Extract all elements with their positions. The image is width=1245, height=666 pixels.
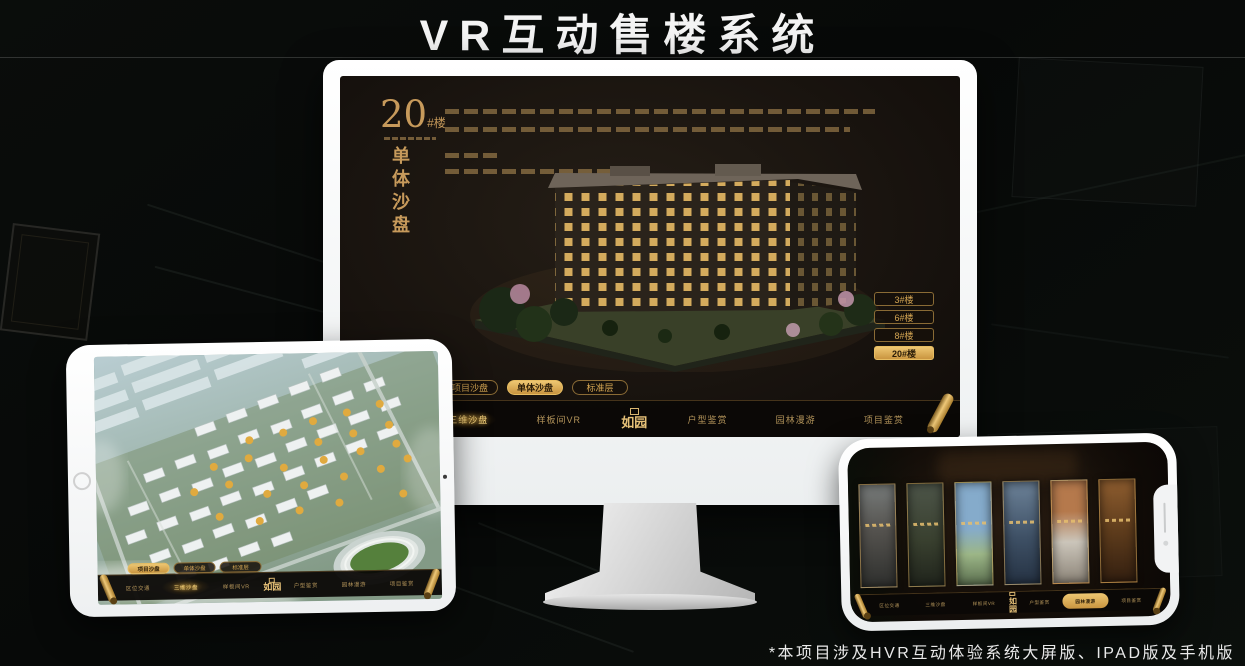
- gallery-panels: [858, 478, 1137, 588]
- bg-plaque: [0, 223, 100, 341]
- monitor-stand-neck: [545, 503, 755, 601]
- nav-item-showroom-vr[interactable]: 样板间VR: [528, 410, 589, 429]
- camera-icon: [1163, 541, 1168, 546]
- scroll-handle-icon[interactable]: [926, 392, 955, 434]
- tablet-view-tabs: 项目沙盘 单体沙盘 标准层: [127, 561, 261, 574]
- nav-item-garden-roam[interactable]: 园林漫游: [1063, 593, 1109, 609]
- nav-item-garden-roam[interactable]: 园林漫游: [768, 410, 824, 429]
- screen-heading: 20#楼 单体沙盘: [380, 96, 446, 238]
- tablet-home-button[interactable]: [73, 472, 91, 490]
- nav-item-garden-roam[interactable]: 园林漫游: [329, 575, 377, 593]
- bg-road-line: [991, 323, 1229, 358]
- tablet-tab-standard-floor[interactable]: 标准层: [219, 561, 261, 573]
- heading-subtitle: 单体沙盘: [386, 146, 412, 238]
- monitor-stand-base: [543, 594, 757, 610]
- footnote-text: *本项目涉及HVR互动体验系统大屏版、IPAD版及手机版: [769, 639, 1235, 663]
- seal-icon: [630, 408, 639, 415]
- gallery-panel[interactable]: [1050, 479, 1089, 584]
- gallery-panel[interactable]: [858, 483, 897, 588]
- interior-backdrop: [937, 450, 1078, 483]
- tablet-tab-project-sandbox[interactable]: 项目沙盘: [127, 563, 169, 575]
- title-divider: [0, 57, 1245, 58]
- gallery-panel[interactable]: [906, 482, 945, 587]
- floor-button-8[interactable]: 8#楼: [874, 328, 934, 342]
- tablet-tab-single-sandbox[interactable]: 单体沙盘: [173, 562, 215, 574]
- gallery-panel[interactable]: [1002, 480, 1041, 585]
- nav-item-project-gallery[interactable]: 项目鉴赏: [378, 574, 426, 592]
- brand-logo: 如园: [621, 408, 647, 430]
- phone-device: 区位交通 三维沙盘 样板间VR 如园 户型鉴赏 园林漫游 项目鉴赏: [838, 432, 1180, 631]
- nav-item-3d-sandbox[interactable]: 三维沙盘: [162, 578, 210, 596]
- speaker-icon: [1163, 503, 1166, 533]
- floor-button-20[interactable]: 20#楼: [874, 346, 934, 360]
- brand-logo: 如园: [263, 578, 281, 593]
- heading-english-caption: [384, 137, 436, 140]
- canvas: VR互动售楼系统 20#楼 单体沙盘: [0, 0, 1245, 666]
- phone-notch: [1153, 484, 1179, 572]
- tablet-device: 项目沙盘 单体沙盘 标准层 区位交通 三维沙盘 样板间VR 如园 户型鉴赏 园林…: [66, 339, 457, 618]
- nav-item-project-gallery[interactable]: 项目鉴赏: [856, 410, 912, 429]
- bg-building-silhouette: [1011, 57, 1203, 206]
- tablet-screen: 项目沙盘 单体沙盘 标准层 区位交通 三维沙盘 样板间VR 如园 户型鉴赏 园林…: [94, 351, 442, 605]
- description-line: [445, 109, 875, 114]
- nav-item-3d-sandbox[interactable]: 三维沙盘: [912, 596, 958, 612]
- nav-item-location[interactable]: 区位交通: [114, 579, 162, 597]
- nav-item-unit-plans[interactable]: 户型鉴赏: [679, 410, 735, 429]
- nav-item-project-gallery[interactable]: 项目鉴赏: [1109, 592, 1155, 608]
- floor-button-group: 3#楼 6#楼 8#楼 20#楼: [874, 292, 934, 360]
- nav-item-location[interactable]: 区位交通: [866, 597, 912, 613]
- gallery-panel[interactable]: [954, 481, 993, 586]
- nav-item-showroom-vr[interactable]: 样板间VR: [958, 595, 1009, 611]
- floor-button-3[interactable]: 3#楼: [874, 292, 934, 306]
- building-model-render[interactable]: [460, 160, 890, 372]
- tablet-camera-icon: [443, 475, 447, 479]
- description-line: [445, 153, 497, 158]
- gallery-panel[interactable]: [1098, 478, 1137, 583]
- view-tabs: 项目沙盘 单体沙盘 标准层: [442, 380, 628, 395]
- building-number: 20: [380, 93, 427, 136]
- nav-item-unit-plans[interactable]: 户型鉴赏: [281, 576, 329, 594]
- tab-standard-floor[interactable]: 标准层: [572, 380, 628, 395]
- floor-button-6[interactable]: 6#楼: [874, 310, 934, 324]
- tab-single-sandbox[interactable]: 单体沙盘: [507, 380, 563, 395]
- nav-item-unit-plans[interactable]: 户型鉴赏: [1017, 594, 1063, 610]
- building-unit: #楼: [427, 116, 446, 130]
- page-title: VR互动售楼系统: [0, 1, 1245, 63]
- nav-item-showroom-vr[interactable]: 样板间VR: [210, 577, 263, 595]
- description-line: [445, 127, 850, 132]
- phone-screen: 区位交通 三维沙盘 样板间VR 如园 户型鉴赏 园林漫游 项目鉴赏: [847, 442, 1171, 623]
